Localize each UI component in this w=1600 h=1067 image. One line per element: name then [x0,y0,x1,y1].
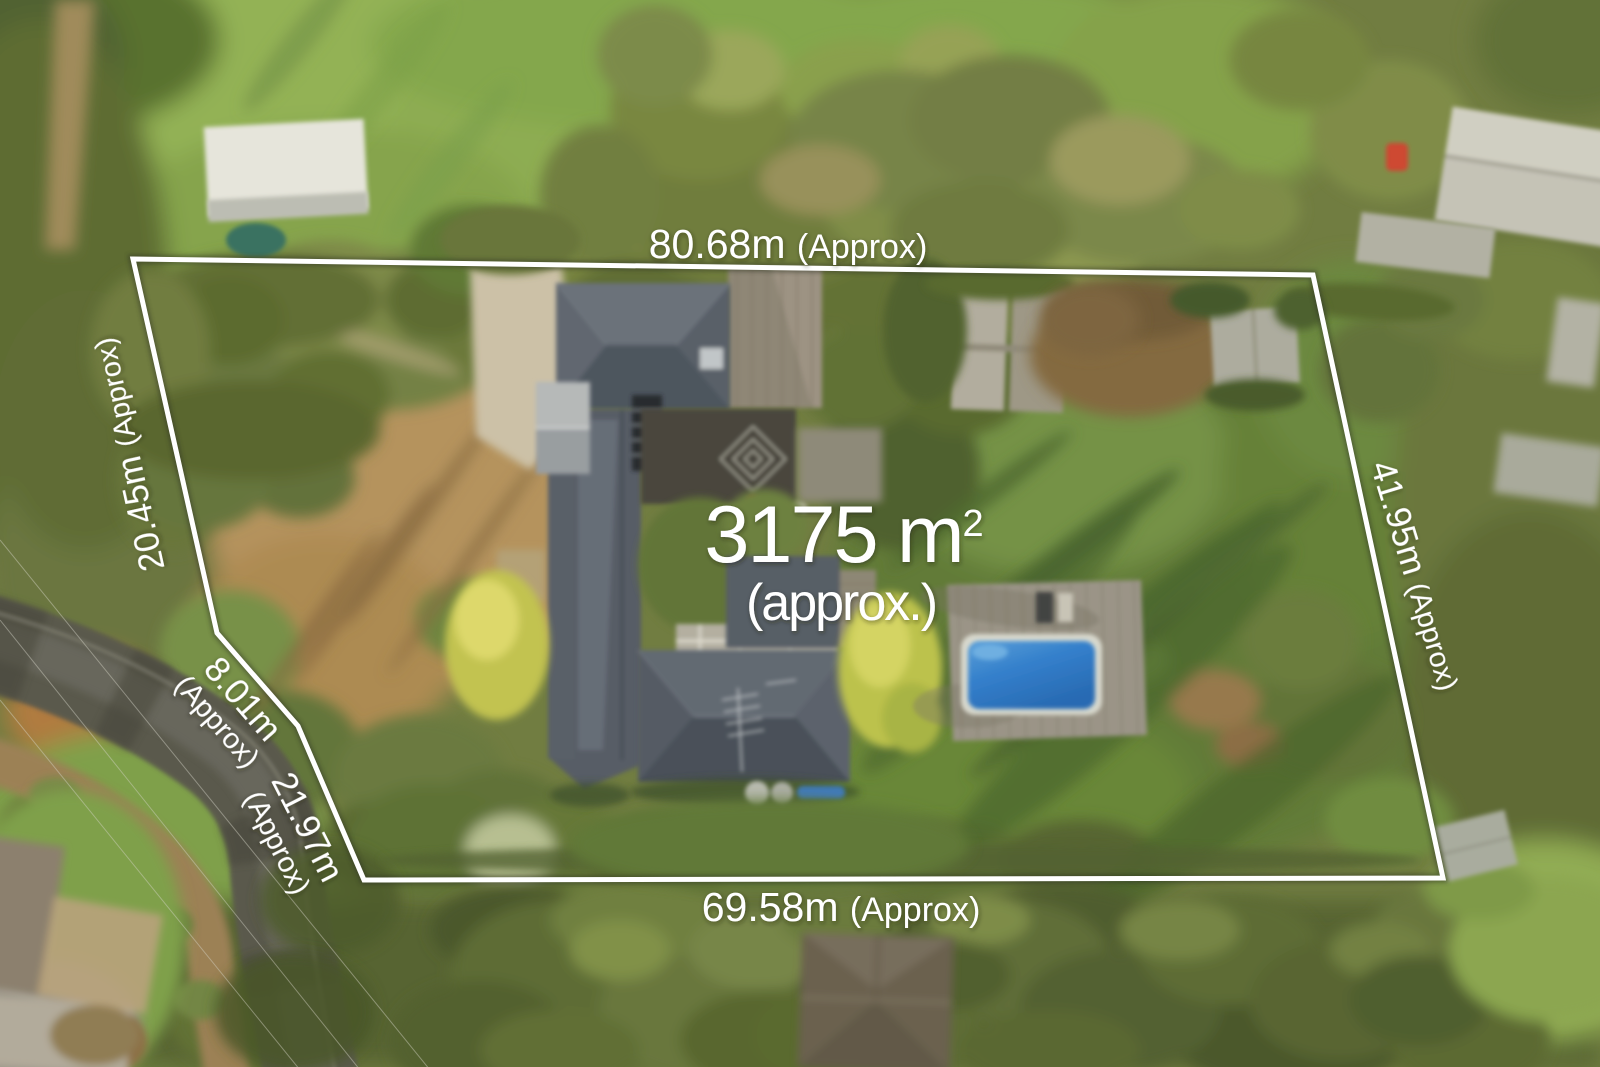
svg-text:3175 m2: 3175 m2 [704,490,982,580]
svg-text:69.58m (Approx): 69.58m (Approx) [702,884,981,930]
svg-text:(approx.): (approx.) [746,574,936,632]
svg-text:80.68m (Approx): 80.68m (Approx) [649,221,928,267]
